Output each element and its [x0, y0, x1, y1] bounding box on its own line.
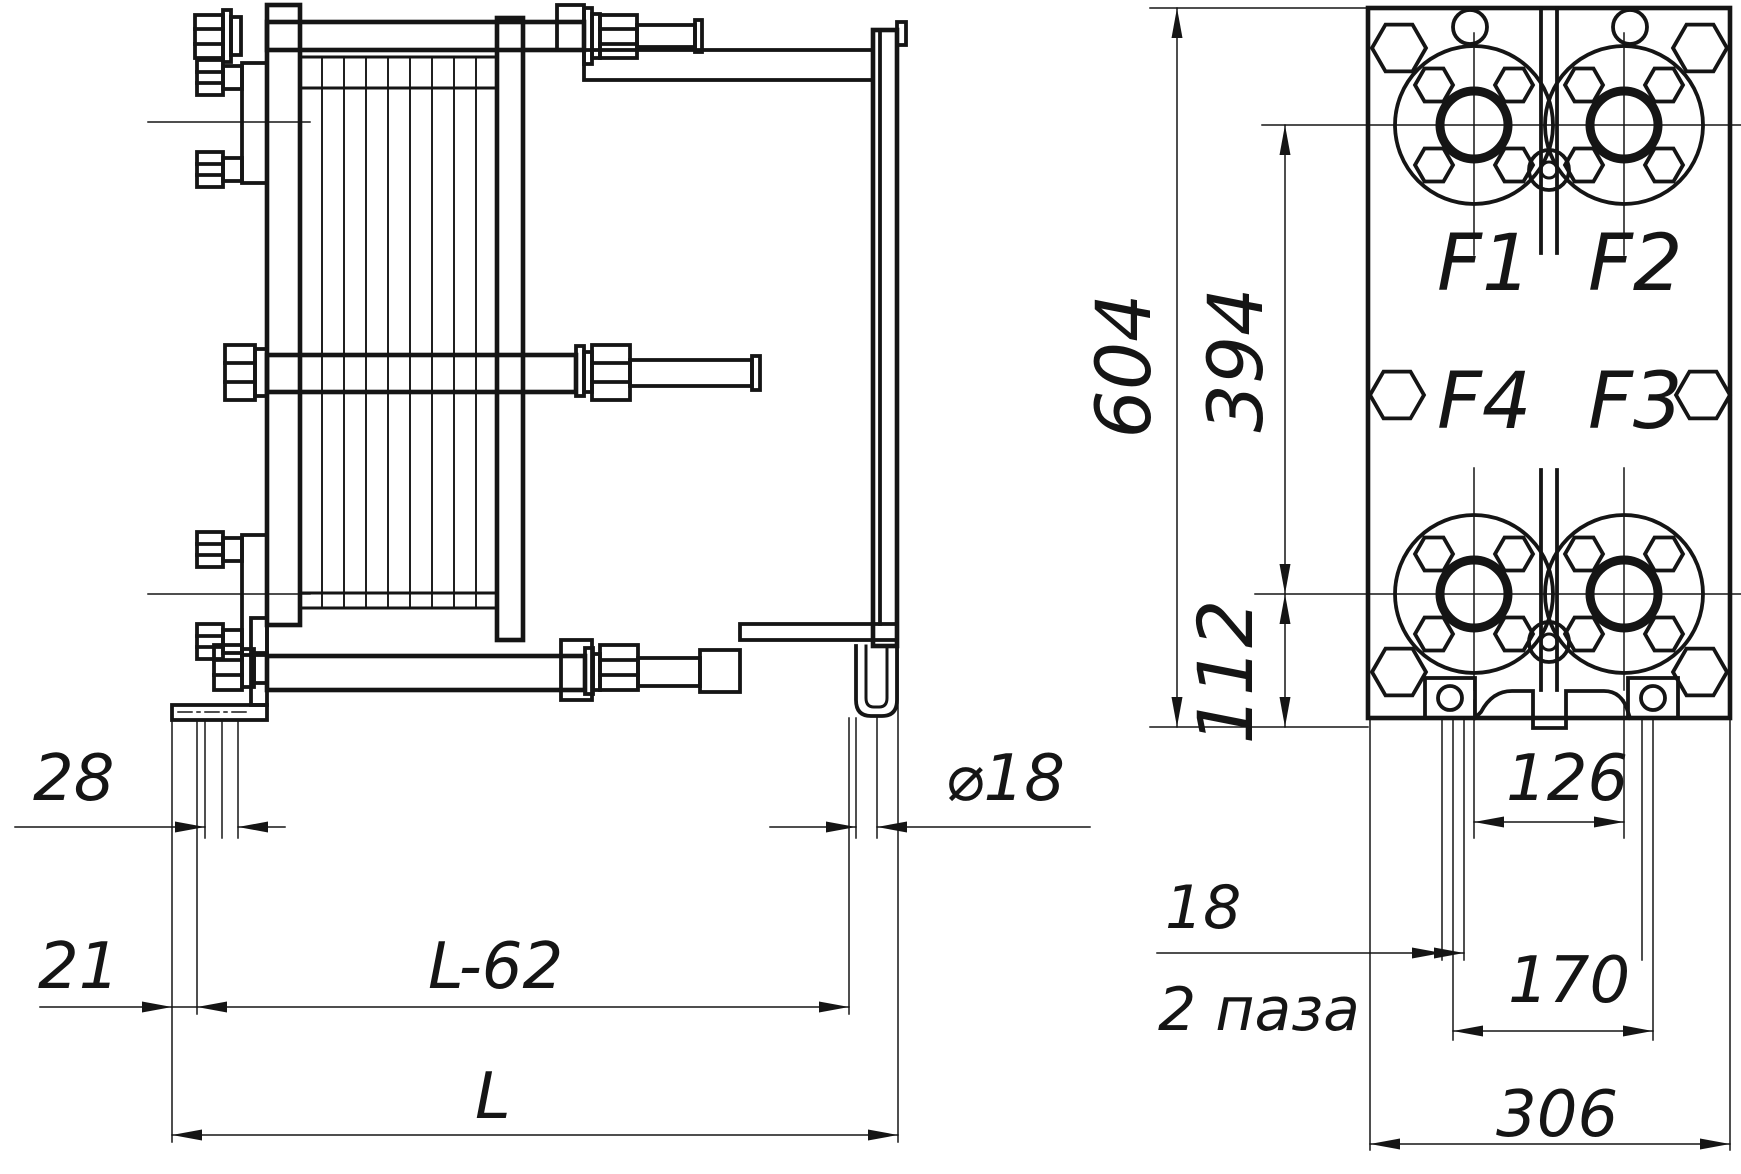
foot-left	[172, 618, 267, 720]
nozzle-flange-lower	[197, 532, 267, 659]
dim-L-label: L	[475, 1060, 511, 1134]
port-f3-label: F3	[1588, 357, 1683, 447]
side-view	[148, 5, 906, 720]
tie-bolt-hex-icon	[1372, 25, 1426, 72]
bolt-head-icon	[225, 345, 255, 400]
pressure-plate	[497, 18, 523, 640]
flange-bolt-icon	[197, 60, 223, 95]
front-view-dimensions: 604 394 112 126 18 2 паза 170 306	[1079, 8, 1730, 1152]
dim-170-label: 170	[1508, 944, 1630, 1018]
dim-126-label: 126	[1506, 742, 1628, 816]
nut-icon	[592, 345, 630, 400]
fixed-plate	[267, 5, 300, 625]
threaded-rod	[630, 360, 752, 386]
base-arch	[1475, 691, 1630, 728]
hanger-hole-icon	[1613, 10, 1647, 44]
guide-bar-rear	[584, 50, 873, 80]
flange-bolt-icon	[197, 152, 223, 187]
plate-pack	[300, 57, 497, 608]
mounting-slot-right	[1628, 678, 1678, 718]
port-f4-label: F4	[1437, 357, 1532, 447]
port-f2-label: F2	[1588, 219, 1683, 309]
carrying-bar-slot-top	[1529, 8, 1569, 253]
bolt-head-icon	[195, 15, 223, 58]
dim-L62-label: L-62	[428, 930, 563, 1004]
guide-bar-slot-bottom	[1529, 470, 1569, 690]
tie-bolt-hex-icon	[1372, 649, 1426, 696]
tie-bolt-hex-icon	[1676, 372, 1730, 419]
hanger-hole-icon	[1453, 10, 1487, 44]
dim-21-label: 21	[38, 930, 119, 1004]
port-f1-label: F1	[1437, 219, 1532, 309]
nut-icon	[600, 645, 638, 690]
flange-bolt-icon	[197, 624, 223, 659]
tie-bolt-bottom	[214, 645, 740, 694]
nozzle-flange-upper	[197, 60, 267, 187]
slot-note-label: 2 паза	[1158, 975, 1360, 1045]
dim-604-label: 604	[1079, 293, 1168, 438]
slot-width-label: 18	[1165, 873, 1241, 943]
tie-bolt-hex-icon	[1370, 372, 1424, 419]
tie-bolt-hex-icon	[1673, 649, 1727, 696]
tie-bolt-middle	[225, 345, 760, 400]
dim-28-label: 28	[33, 742, 114, 816]
flange-bolt-icon	[197, 532, 223, 567]
carrying-bar-top	[267, 5, 873, 80]
dim-dia18-label: ⌀18	[945, 742, 1065, 816]
tie-bolt-hex-icon	[1673, 25, 1727, 72]
dim-306-label: 306	[1496, 1078, 1618, 1152]
front-view: F1 F2 F4 F3	[1255, 8, 1741, 728]
mounting-slot-left	[1425, 678, 1475, 718]
support-column	[740, 22, 906, 716]
dim-394-label: 394	[1191, 287, 1280, 432]
dim-112-label: 112	[1181, 599, 1270, 744]
threaded-rod	[637, 25, 695, 47]
side-view-dimensions: 28 ⌀18 21 L-62 L	[15, 648, 1090, 1142]
drawing-sheet: 28 ⌀18 21 L-62 L	[0, 0, 1741, 1174]
heat-exchanger-drawing: 28 ⌀18 21 L-62 L	[0, 0, 1741, 1174]
threaded-rod	[638, 658, 700, 686]
hanger-bracket	[557, 5, 584, 50]
